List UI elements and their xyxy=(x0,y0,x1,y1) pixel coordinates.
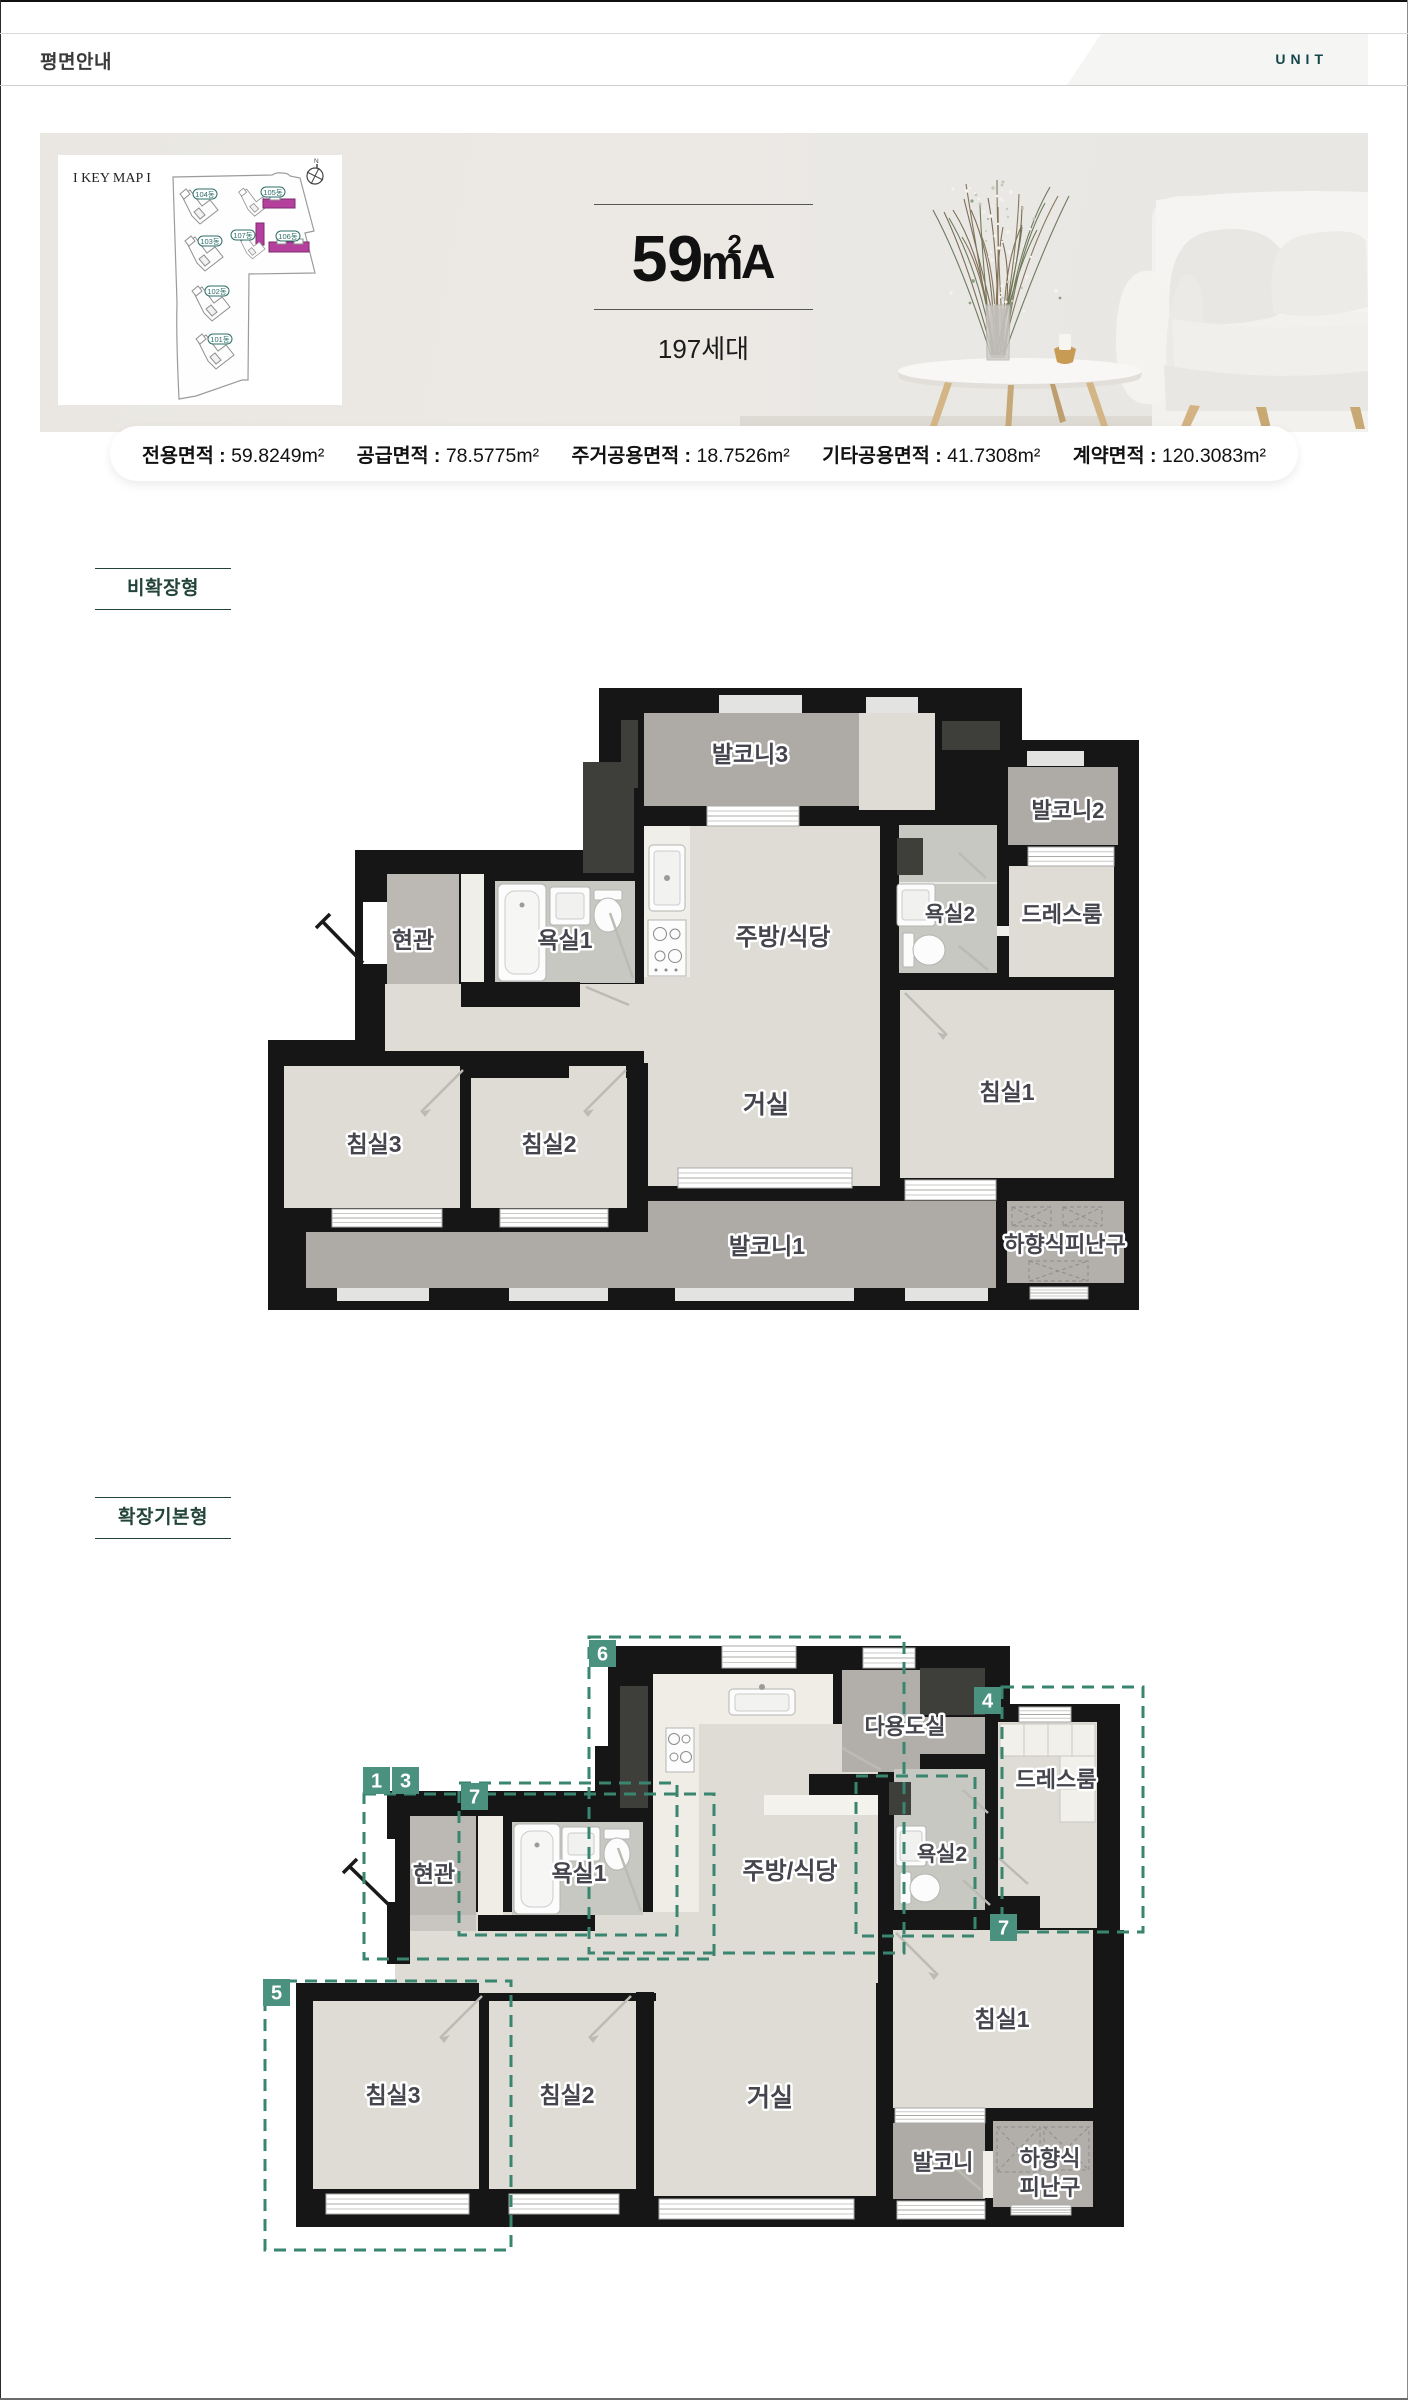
svg-text:침실3: 침실3 xyxy=(346,1131,401,1157)
svg-text:4: 4 xyxy=(982,1691,994,1713)
svg-text:침실2: 침실2 xyxy=(521,1131,576,1157)
svg-text:5: 5 xyxy=(271,1983,282,2005)
svg-text:106동: 106동 xyxy=(278,232,298,241)
svg-text:욕실2: 욕실2 xyxy=(925,903,975,926)
svg-text:발코니2: 발코니2 xyxy=(1032,798,1105,823)
svg-text:침실3: 침실3 xyxy=(365,2082,420,2108)
svg-text:6: 6 xyxy=(597,1644,608,1666)
svg-text:101동: 101동 xyxy=(210,335,230,344)
svg-text:현관: 현관 xyxy=(392,927,434,953)
svg-text:현관: 현관 xyxy=(413,1861,455,1887)
svg-text:드레스룸: 드레스룸 xyxy=(1016,1767,1097,1792)
svg-text:주방/식당: 주방/식당 xyxy=(743,1858,838,1885)
svg-text:103동: 103동 xyxy=(200,237,220,246)
svg-text:1: 1 xyxy=(371,1771,382,1793)
svg-text:105동: 105동 xyxy=(263,188,283,197)
svg-text:N: N xyxy=(314,158,319,165)
svg-text:주방/식당: 주방/식당 xyxy=(736,924,831,951)
svg-text:하향식: 하향식 xyxy=(1020,2146,1081,2171)
svg-text:3: 3 xyxy=(400,1771,411,1793)
svg-text:발코니3: 발코니3 xyxy=(712,741,788,767)
svg-text:7: 7 xyxy=(998,1918,1009,1940)
svg-text:104동: 104동 xyxy=(195,190,215,199)
svg-text:욕실1: 욕실1 xyxy=(537,927,592,953)
svg-text:발코니: 발코니 xyxy=(913,2150,974,2175)
svg-text:다용도실: 다용도실 xyxy=(865,1714,946,1739)
svg-text:피난구: 피난구 xyxy=(1020,2175,1081,2200)
svg-text:거실: 거실 xyxy=(747,2084,793,2112)
svg-text:하향식피난구: 하향식피난구 xyxy=(1004,1232,1125,1257)
svg-text:침실2: 침실2 xyxy=(539,2082,594,2108)
svg-text:침실1: 침실1 xyxy=(974,2006,1029,2032)
svg-text:욕실1: 욕실1 xyxy=(551,1860,606,1886)
svg-text:침실1: 침실1 xyxy=(979,1079,1034,1105)
svg-text:107동: 107동 xyxy=(233,231,253,240)
svg-text:7: 7 xyxy=(469,1787,480,1809)
svg-text:거실: 거실 xyxy=(743,1091,789,1119)
svg-text:102동: 102동 xyxy=(207,287,227,296)
svg-text:발코니1: 발코니1 xyxy=(729,1233,805,1259)
svg-text:드레스룸: 드레스룸 xyxy=(1022,902,1103,927)
svg-text:욕실2: 욕실2 xyxy=(917,1843,967,1866)
